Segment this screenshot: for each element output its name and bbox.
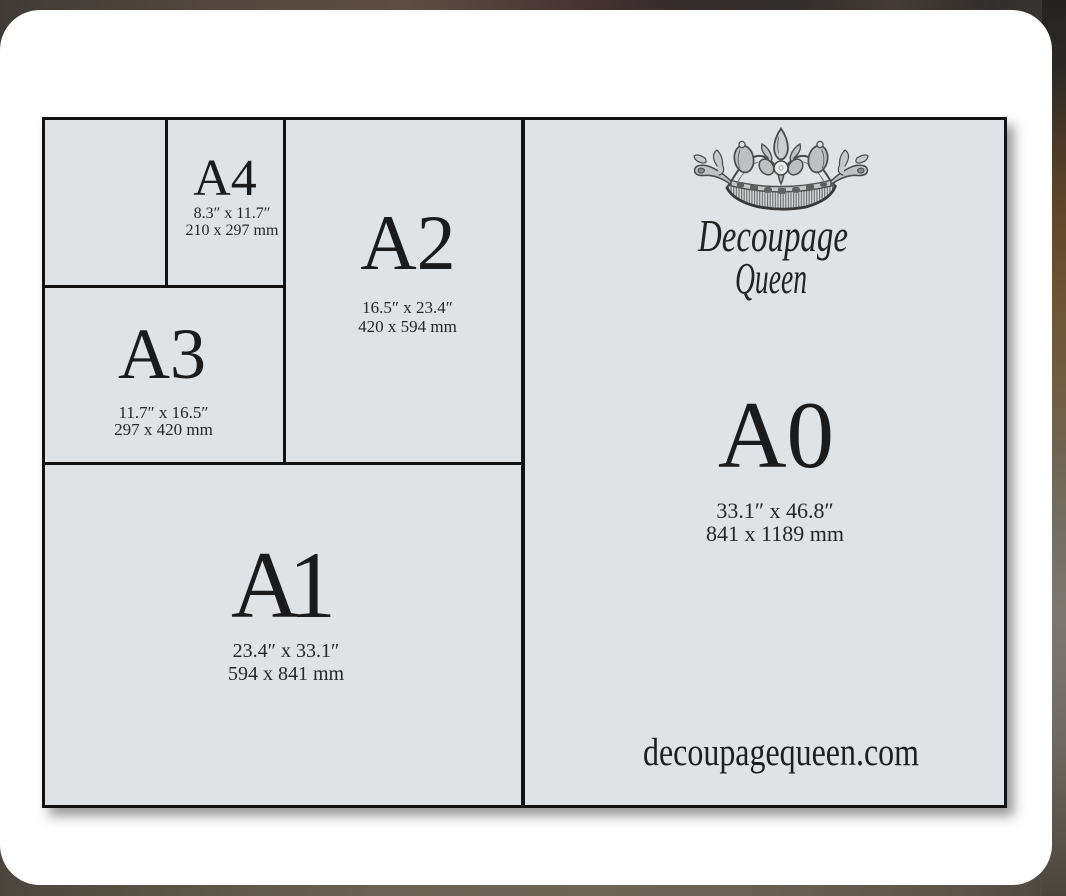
svg-text:Queen: Queen — [735, 254, 807, 303]
svg-text:decoupagequeen.com: decoupagequeen.com — [643, 731, 919, 774]
